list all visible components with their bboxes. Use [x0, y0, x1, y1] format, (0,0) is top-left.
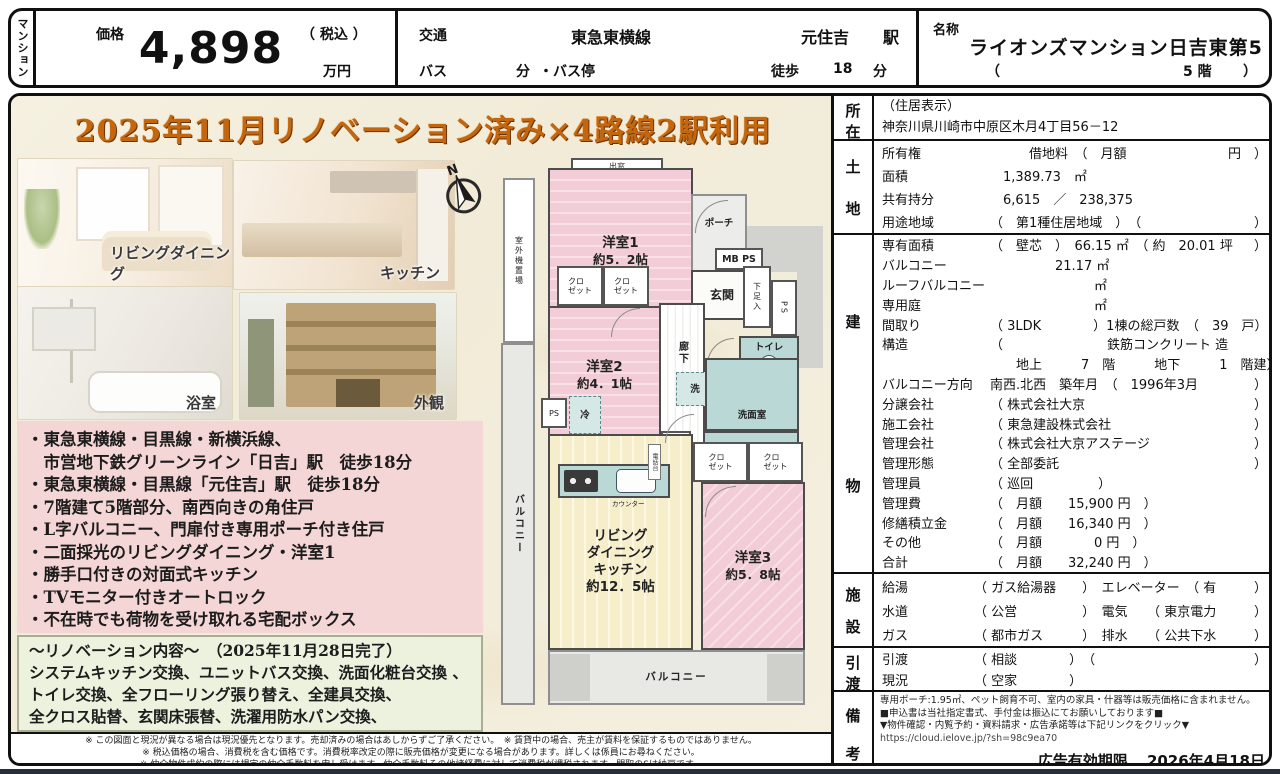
- transport-line: 東急東横線: [571, 24, 651, 48]
- address-value: 神奈川県川崎市中原区木月4丁目56－12: [874, 117, 1272, 138]
- remarks-line: ■申込書は当社指定書式、手付金は振込にてお願いしております■: [874, 708, 1272, 721]
- ad-expiry-label: 広告有効期限: [1038, 752, 1128, 766]
- table-row: 管理会社 （ 株式会社大京アステージ ）: [874, 433, 1272, 453]
- phone-stand: 電話台: [648, 444, 661, 480]
- transport-walk-min: 18: [833, 61, 852, 77]
- photo-kitchen: キッチン: [233, 160, 455, 290]
- header: マンション 価格 （ 税込 ） 4,898 万円 交通 東急東横線 元住吉 駅 …: [8, 8, 1272, 88]
- section-handover-label: 引渡: [834, 648, 874, 690]
- room-ldk: カウンター リビングダイニングキッチン約12．5帖: [548, 434, 693, 650]
- price-value: 4,898: [121, 23, 301, 74]
- outdoor-unit-space: 室外機置場: [503, 178, 535, 343]
- svg-text:N: N: [445, 162, 460, 179]
- photo-caption-exterior: 外観: [414, 392, 444, 413]
- feature-line: ・東急東横線・目黒線・新横浜線、: [27, 429, 483, 452]
- table-row: 修繕積立金 （ 月額 16,340 円 ）: [874, 512, 1272, 532]
- window-shape: [76, 167, 150, 241]
- renovation-box: ～リノベーション内容～ （2025年11月28日完了） システムキッチン交換、ユ…: [17, 635, 483, 732]
- table-row: 管理費 （ 月額 15,900 円 ）: [874, 492, 1272, 512]
- table-row: バルコニー方向 南西.北西 築年月 （ 1996年3月 ）: [874, 374, 1272, 394]
- table-row: 共有持分 6,615 ／ 238,375: [874, 187, 1272, 210]
- section-land-label: 土地: [834, 141, 874, 233]
- table-row: 面積 1,389.73 ㎡: [874, 164, 1272, 187]
- table-row: 地上 7 階 地下 1 階建 ）: [874, 354, 1272, 374]
- section-address-label: 所在: [834, 96, 874, 139]
- ldk-label-line: キッチン: [586, 562, 655, 579]
- remarks-link: https://cloud.ielove.jp/?sh=98c9ea70: [874, 733, 1272, 746]
- remarks-line: ▼物件確認・内覧予約・資料請求・広告承諾等は下記リンクをクリック▼: [874, 720, 1272, 733]
- header-divider: [395, 11, 398, 85]
- ldk-label: リビングダイニングキッチン約12．5帖: [586, 528, 655, 596]
- transport-walk: 徒歩: [771, 61, 799, 81]
- table-row: 用途地域 （ 第1種住居地域 ） （ ）: [874, 210, 1272, 233]
- table-row: 専用庭 ㎡: [874, 294, 1272, 314]
- disclaimer-line: ※ 仲介物件成約の際には規定の仲介手数料を申し受けます。仲介手数料その他諸経費に…: [140, 759, 702, 767]
- closet: クロ ゼット: [748, 442, 803, 482]
- price-unit: 万円: [323, 61, 351, 81]
- renovation-line: 全クロス貼替、玄関床張替、洗濯用防水パン交換、: [29, 706, 481, 728]
- page-edge: [0, 769, 1280, 774]
- name-paren-open: （: [986, 61, 1000, 81]
- name-paren-close: ）: [1243, 61, 1257, 81]
- features-box: ・東急東横線・目黒線・新横浜線、 市営地下鉄グリーンライン「日吉」駅 徒歩18分…: [17, 421, 483, 633]
- pipe-space-small: PS: [541, 398, 567, 428]
- feature-line: ・TVモニター付きオートロック: [27, 587, 483, 610]
- table-row: 分譲会社 （ 株式会社大京 ）: [874, 393, 1272, 413]
- fridge-space: 冷: [569, 396, 601, 434]
- mirror-shape: [32, 307, 96, 351]
- table-row: 構造 （ 鉄筋コンクリート 造: [874, 334, 1272, 354]
- entrance-shape: [336, 379, 380, 407]
- section-address: 所在 （住居表示） 神奈川県川崎市中原区木月4丁目56－12: [834, 96, 1272, 141]
- renovation-line: トイレ交換、全フローリング張り替え、全建具交換、: [29, 684, 481, 706]
- table-row: 引渡 （ 相談 ） （ ）: [874, 648, 1272, 669]
- transport-bus-stop: ・バス停: [539, 61, 595, 81]
- pillar: [767, 654, 803, 701]
- section-land: 土地 所有権 借地料 （ 月額 円 ） 面積 1,389.73 ㎡: [834, 141, 1272, 235]
- section-facility-label: 施設: [834, 574, 874, 646]
- section-building-label: 建物: [834, 235, 874, 572]
- shoe-cabinet: 下足入: [743, 266, 771, 328]
- floor-number: 5 階: [1183, 61, 1212, 81]
- photo-caption-bath: 浴室: [186, 392, 216, 413]
- section-remarks-label: 備考: [834, 692, 874, 766]
- photo-bath: 浴室: [17, 286, 233, 420]
- tree-shape: [248, 319, 274, 407]
- feature-line: ・7階建て5階部分、南西向きの角住戸: [27, 497, 483, 520]
- ad-expiry: 広告有効期限 2026年4月18日: [1038, 750, 1265, 766]
- ad-expiry-date: 2026年4月18日: [1133, 752, 1265, 766]
- price-label: 価格: [96, 24, 124, 44]
- building-name: ライオンズマンション日吉東第5: [969, 33, 1263, 60]
- room-washroom: 洗面室: [705, 358, 799, 431]
- pipe-space: PS: [771, 280, 797, 336]
- feature-line: ・勝手口付きの対面式キッチン: [27, 564, 483, 587]
- feature-line: ・東急東横線・目黒線「元住吉」駅 徒歩18分: [27, 474, 483, 497]
- photo-caption-living: リビングダイニング: [110, 242, 232, 284]
- header-divider: [33, 11, 36, 85]
- category-tab: マンション: [11, 11, 33, 85]
- transport-station: 元住吉: [801, 24, 849, 48]
- photo-living: リビングダイニング: [17, 158, 233, 293]
- table-row: その他 （ 月額 0 円 ）: [874, 532, 1272, 552]
- common-wall-slab: [797, 272, 823, 368]
- section-handover: 引渡 引渡 （ 相談 ） （ ） 現況 （ 空家 ）: [834, 648, 1272, 692]
- table-row: 管理形態 （ 全部委託 ）: [874, 453, 1272, 473]
- balcony-line-shape: [286, 345, 436, 351]
- flyer-page: マンション 価格 （ 税込 ） 4,898 万円 交通 東急東横線 元住吉 駅 …: [0, 0, 1280, 774]
- ldk-label-line: 約12．5帖: [586, 579, 655, 596]
- table-row: ガス （ 都市ガス ） 排水 （ 公共下水 ）: [874, 622, 1272, 646]
- category-tab-label: マンション: [14, 18, 30, 78]
- counter-shape: [242, 223, 402, 257]
- main-frame: 2025年11月リノベーション済み×4路線2駅利用可 リビングダイニング キッチ…: [8, 93, 1272, 766]
- range-hood-shape: [330, 171, 416, 193]
- transport-walk-unit: 分: [873, 61, 887, 81]
- header-divider: [916, 11, 919, 85]
- photo-exterior: 外観: [239, 292, 457, 420]
- disclaimer-strip: ※ この図面と現況が異なる場合は現況優先となります。売却済みの場合はあしからずご…: [11, 732, 831, 766]
- table-row: 専有面積 （ 壁芯 ） 66.15 ㎡ （ 約 20.01 坪 ）: [874, 235, 1272, 255]
- closet: クロ ゼット: [557, 266, 603, 306]
- transport-bus-min: 分: [516, 61, 530, 81]
- closet: クロ ゼット: [693, 442, 748, 482]
- balcony-line-shape: [286, 321, 436, 327]
- stove-icon: [564, 470, 598, 492]
- name-label: 名称: [933, 19, 959, 38]
- section-remarks: 備考 専用ポーチ:1.95㎡、ペット飼育不可、室内の家具・什器等は販売価格に含ま…: [834, 692, 1272, 766]
- table-row: 間取り （ 3LDK ）1棟の総戸数 （ 39 戸 ）: [874, 314, 1272, 334]
- table-row: バルコニー 21.17 ㎡: [874, 255, 1272, 275]
- transport-bus: バス: [419, 61, 447, 81]
- closet: クロ ゼット: [603, 266, 649, 306]
- floor-plan: 出窓 洋室1 約5．2帖 室外機置場 バルコニー ポーチ MB PS 玄関 下足…: [493, 158, 825, 710]
- table-row: 施工会社 （ 東急建設株式会社 ）: [874, 413, 1272, 433]
- detail-table: 所在 （住居表示） 神奈川県川崎市中原区木月4丁目56－12 土地 所有権 借地: [831, 96, 1272, 766]
- table-row: 管理員 （ 巡回 ）: [874, 473, 1272, 493]
- table-row: 合計 （ 月額 32,240 円 ）: [874, 552, 1272, 572]
- feature-line: ・二面採光のリビングダイニング・洋室1: [27, 542, 483, 565]
- table-row: ルーフバルコニー ㎡: [874, 275, 1272, 295]
- feature-line: 市営地下鉄グリーンライン「日吉」駅 徒歩18分: [27, 452, 483, 475]
- address-note: （住居表示）: [874, 96, 1272, 117]
- remarks-line: 専用ポーチ:1.95㎡、ペット飼育不可、室内の家具・什器等は販売価格に含まれませ…: [874, 695, 1272, 708]
- transport-station-unit: 駅: [883, 24, 899, 48]
- section-facility: 施設 給湯 （ ガス給湯器 ） エレベーター （ 有 ） 水道 （ 公営 ） 電…: [834, 574, 1272, 648]
- balcony-line-shape: [286, 369, 436, 375]
- table-row: 水道 （ 公営 ） 電気 （ 東京電力 ）: [874, 598, 1272, 622]
- section-building: 建物 専有面積 （ 壁芯 ） 66.15 ㎡ （ 約 20.01 坪 ） バルコ…: [834, 235, 1272, 574]
- balcony-left: バルコニー: [501, 343, 535, 705]
- table-row: 所有権 借地料 （ 月額 円 ）: [874, 141, 1272, 164]
- ldk-label-line: リビング: [586, 528, 655, 545]
- price-tax-note: （ 税込 ）: [301, 24, 367, 44]
- ldk-label-line: ダイニング: [586, 545, 655, 562]
- table-row: 給湯 （ ガス給湯器 ） エレベーター （ 有 ）: [874, 574, 1272, 598]
- compass-icon: N: [435, 162, 491, 220]
- disclaimer-line: ※ この図面と現況が異なる場合は現況優先となります。売却済みの場合はあしからずご…: [85, 735, 757, 747]
- counter-label: カウンター: [612, 500, 645, 509]
- feature-line: ・L字バルコニー、門扉付き専用ポーチ付き住戸: [27, 519, 483, 542]
- table-row: 現況 （ 空家 ）: [874, 669, 1272, 690]
- plant-shape: [24, 189, 60, 249]
- feature-line: ・不在時でも荷物を受け取れる宅配ボックス: [27, 609, 483, 632]
- pillar: [550, 654, 590, 701]
- renovation-title: ～リノベーション内容～ （2025年11月28日完了）: [29, 640, 481, 662]
- transport-label: 交通: [419, 25, 447, 45]
- renovation-line: システムキッチン交換、ユニットバス交換、洗面化粧台交換 、: [29, 662, 481, 684]
- photo-caption-kitchen: キッチン: [380, 262, 440, 283]
- disclaimer-line: ※ 税込価格の場合、消費税を含む価格です。消費税率改定の際に販売価格が変更になる…: [142, 747, 700, 759]
